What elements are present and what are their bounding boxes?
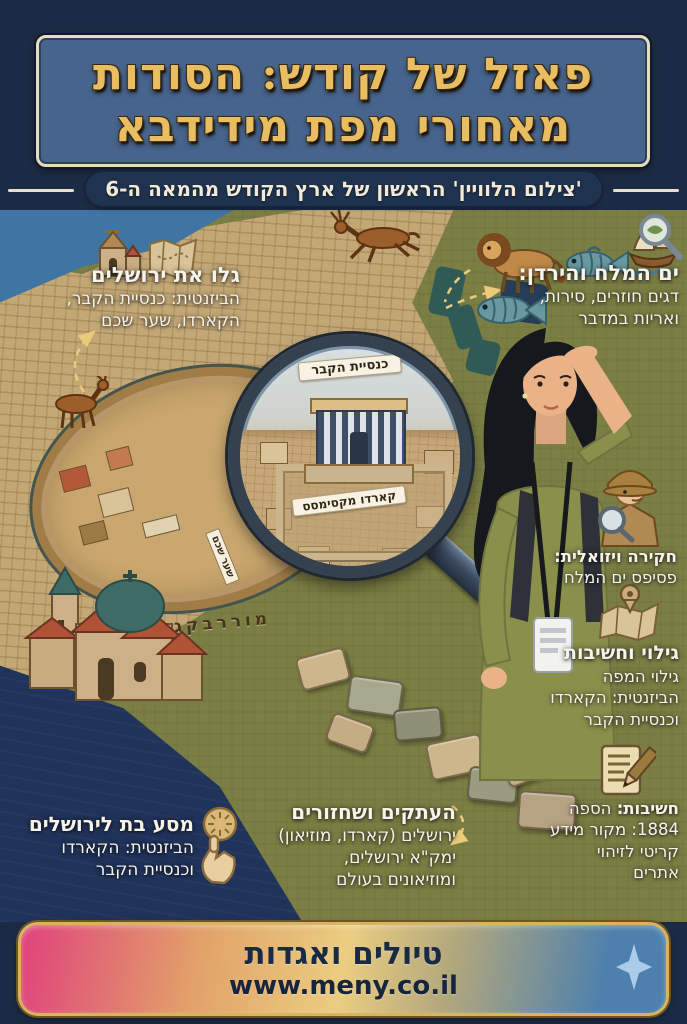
city-street	[142, 514, 181, 538]
sparkle-icon	[616, 944, 652, 990]
city-building	[59, 465, 91, 493]
city-building	[105, 446, 133, 471]
annotation-dead-sea: ים המלח והירדן: דגים חוזרים, סירות, וארי…	[467, 260, 679, 330]
annotation-dead-sea-line1: דגים חוזרים, סירות,	[467, 286, 679, 308]
annotation-importance-line3: אתרים	[511, 862, 679, 883]
annotation-visual-inquiry: חקירה ויזואלית: פסיפס ים המלח	[527, 546, 677, 589]
poster-title-line2: מאחורי מפת מידידבא	[115, 101, 571, 153]
annotation-importance-title-rest: הספה	[569, 799, 612, 818]
detective-icon	[590, 454, 670, 548]
annotation-replicas-line1: ירושלים (קארדו, מוזיאון)	[238, 825, 456, 847]
map-pin-icon	[596, 582, 664, 642]
annotation-dead-sea-title: ים המלח והירדן:	[467, 260, 679, 286]
annotation-importance-title-bold: חשיבות:	[617, 799, 679, 818]
pointing-hand-icon	[190, 806, 244, 886]
annotation-discovery-line1: גילוי המפה	[511, 666, 679, 687]
domed-church-illustration	[6, 562, 224, 730]
lens-label-holy-sepulchre: כנסיית הקבר	[298, 354, 403, 382]
annotation-replicas-line2: ימק"א ירושלים,	[238, 847, 456, 869]
annotation-importance-title: חשיבות: הספה	[511, 798, 679, 819]
annotation-importance-line2: קריטי לזיהוי	[511, 841, 679, 862]
annotation-journey: מסע בת לירושלים הביזנטית: הקארדו וכנסיית…	[14, 812, 194, 881]
annotation-discovery-line2: הביזנטית: הקארדו	[511, 687, 679, 708]
annotation-replicas: העתקים ושחזורים ירושלים (קארדו, מוזיאון)…	[238, 800, 456, 891]
infographic-poster: פאזל של קודש: הסודות מאחורי מפת מידידבא …	[0, 0, 687, 1024]
footer-brand-title: טיולים ואגדות	[244, 937, 442, 971]
annotation-visual-inquiry-line1: חקירה ויזואלית:	[527, 546, 677, 567]
annotation-journey-line1: הביזנטית: הקארדו	[14, 837, 194, 859]
subtitle-rule-right	[8, 189, 74, 192]
subtitle-rule-left	[613, 189, 679, 192]
city-building	[97, 487, 134, 518]
lens-house	[260, 442, 288, 464]
annotation-jerusalem-title: גלו את ירושלים	[22, 262, 240, 288]
city-building	[79, 520, 109, 546]
annotation-jerusalem: גלו את ירושלים הביזנטית: כנסיית הקבר, הק…	[22, 262, 240, 332]
annotation-journey-title: מסע בת לירושלים	[14, 812, 194, 837]
leaping-deer-icon	[325, 210, 435, 266]
annotation-journey-line2: וכנסיית הקבר	[14, 859, 194, 881]
note-pencil-icon	[594, 742, 656, 798]
annotation-visual-inquiry-line2: פסיפס ים המלח	[527, 567, 677, 588]
annotation-importance-line1: 1884: מקור מידע	[511, 819, 679, 840]
annotation-replicas-line3: ומוזיאונים בעולם	[238, 869, 456, 891]
annotation-discovery: גילוי וחשיבות גילוי המפה הביזנטית: הקארד…	[511, 642, 679, 730]
annotation-importance: חשיבות: הספה 1884: מקור מידע קריטי לזיהו…	[511, 798, 679, 884]
annotation-dead-sea-line2: ואריות במדבר	[467, 308, 679, 330]
annotation-replicas-title: העתקים ושחזורים	[238, 800, 456, 825]
annotation-jerusalem-line1: הביזנטית: כנסיית הקבר,	[22, 288, 240, 310]
standing-gazelle-icon	[42, 376, 110, 432]
annotation-discovery-line3: וכנסיית הקבר	[511, 709, 679, 730]
lens-temple	[316, 398, 402, 480]
title-panel: פאזל של קודש: הסודות מאחורי מפת מידידבא	[36, 35, 650, 167]
footer-banner: טיולים ואגדות www.meny.co.il	[18, 922, 669, 1016]
poster-title-line1: פאזל של קודש: הסודות	[93, 49, 593, 101]
footer-website-link[interactable]: www.meny.co.il	[229, 971, 458, 1001]
poster-subtitle: 'צילום הלוויין' הראשון של ארץ הקודש מהמא…	[105, 177, 582, 201]
annotation-discovery-title: גילוי וחשיבות	[511, 642, 679, 666]
magnifier-small-icon	[634, 210, 686, 262]
subtitle-pill: 'צילום הלוויין' הראשון של ארץ הקודש מהמא…	[85, 172, 602, 206]
annotation-jerusalem-line2: הקארדו, שער שכם	[22, 310, 240, 332]
